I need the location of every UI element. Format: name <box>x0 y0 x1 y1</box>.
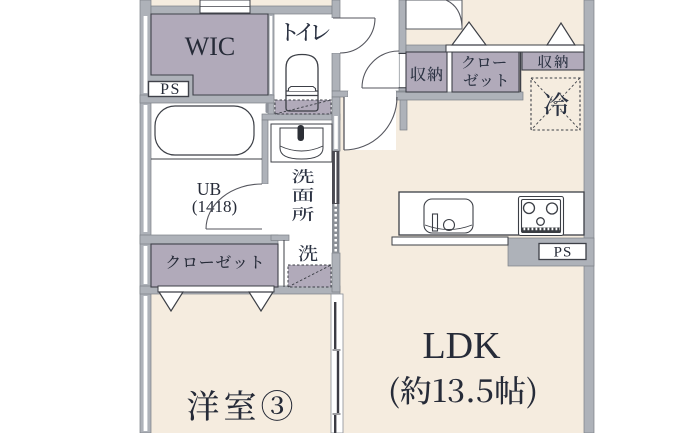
svg-text:(1418): (1418) <box>192 197 237 216</box>
svg-text:WIC: WIC <box>185 32 236 61</box>
svg-text:UB: UB <box>197 179 221 199</box>
svg-text:LDK: LDK <box>422 325 501 367</box>
svg-text:PS: PS <box>160 81 181 98</box>
svg-text:PS: PS <box>554 245 573 261</box>
